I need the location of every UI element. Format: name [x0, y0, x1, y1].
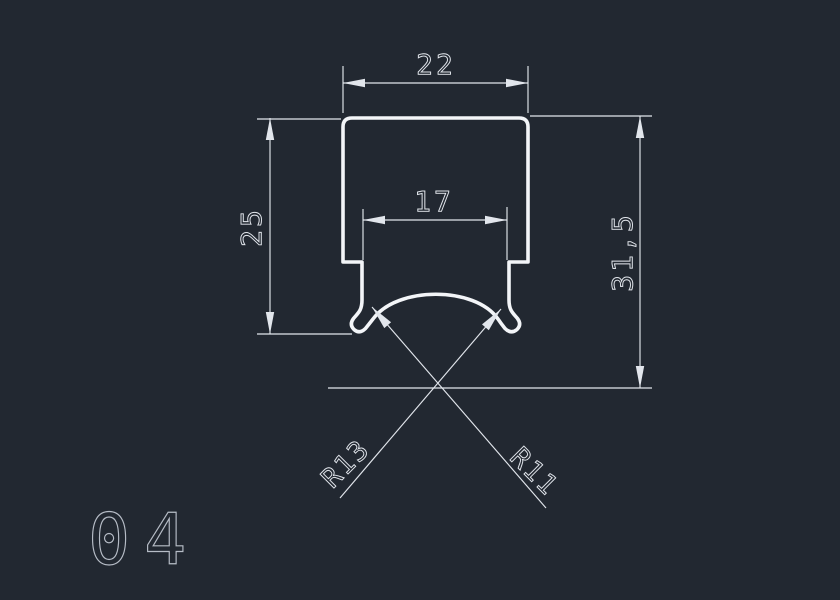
cad-viewport: 22 17 25 31,5 R13 R11 04 [0, 0, 840, 600]
technical-drawing: 22 17 25 31,5 R13 R11 04 [0, 0, 840, 600]
dim-text-top-width: 22 [416, 48, 456, 81]
dim-text-inner-width: 17 [414, 185, 454, 218]
part-number-label: 04 [88, 499, 200, 581]
dim-text-overall-height: 31,5 [606, 212, 639, 291]
dim-text-left-height: 25 [235, 207, 268, 247]
